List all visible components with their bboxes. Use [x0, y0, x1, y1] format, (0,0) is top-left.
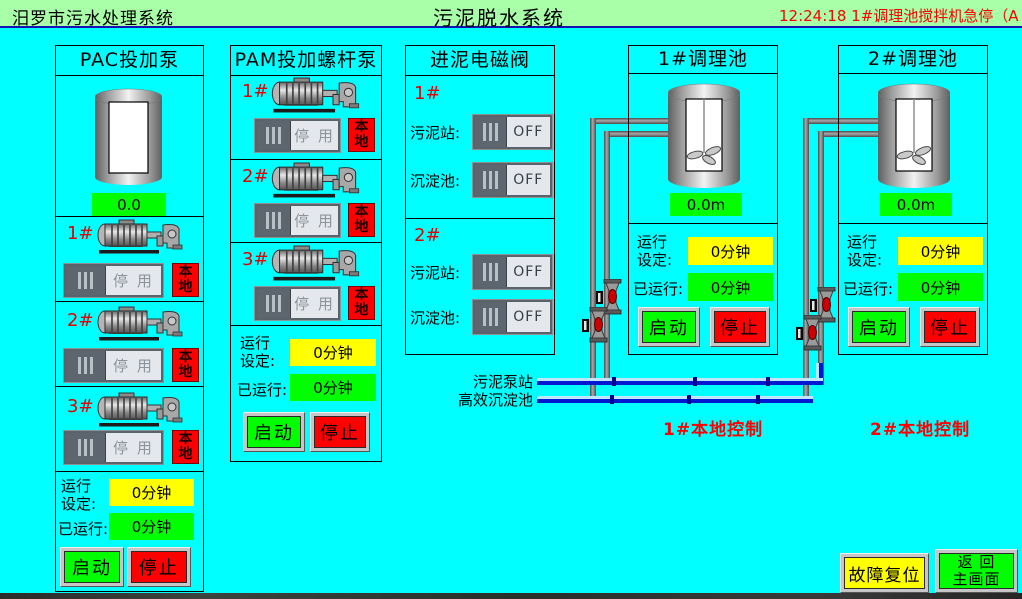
tank2-mixer-tank: [878, 83, 950, 189]
pam-stop-button[interactable]: 停止: [310, 412, 370, 452]
pac-pump-2-label: 2#: [67, 310, 94, 331]
pac-pump-3-switch[interactable]: 停 用: [64, 431, 163, 464]
pipe-joint: [612, 377, 616, 386]
tank2-runset-value[interactable]: 0分钟: [898, 237, 983, 265]
pac-panel-title: PAC投加泵: [56, 46, 203, 76]
system-title: 汨罗市污水处理系统: [12, 4, 174, 29]
bottom-edge-strip: [0, 593, 1022, 599]
pam-panel: PAM投加螺杆泵 1# 停 用 本地 2# 停 用 本地 3# 停 用 本地 运…: [230, 45, 382, 462]
valve-2-sludge-switch[interactable]: OFF: [473, 255, 552, 289]
hmi-screen: 汨罗市污水处理系统 污泥脱水系统 12:24:18 1#调理池搅拌机急停（A P…: [0, 0, 1022, 599]
tank1-stop-button[interactable]: 停止: [710, 307, 770, 347]
valve-1-settling-label: 沉淀池:: [410, 170, 460, 191]
pac-runset-label: 运行设定:: [61, 477, 96, 513]
pam-panel-title: PAM投加螺杆泵: [231, 46, 381, 76]
pam-runset-label: 运行设定:: [240, 334, 275, 370]
valve-icon: [796, 315, 822, 351]
pam-pump-2-local-badge: 本地: [348, 203, 375, 237]
switch-handle-icon: [257, 289, 291, 318]
tank2-control-note: 2#本地控制: [870, 415, 970, 440]
pam-pump-3-local-badge: 本地: [348, 286, 375, 320]
pam-pump-3-label: 3#: [242, 249, 269, 270]
pac-pump-1-local-badge: 本地: [172, 263, 199, 297]
pam-pump-1-switch[interactable]: 停 用: [255, 119, 340, 152]
pump-icon: [93, 392, 185, 428]
valve-group-1-label: 1#: [414, 83, 441, 104]
pipe-joint: [756, 395, 760, 404]
tank1-mixer-tank: [668, 83, 740, 189]
settling-tank-pipe: [537, 396, 813, 403]
valve-1-sludge-switch[interactable]: OFF: [473, 115, 552, 149]
alarm-message: 1#调理池搅拌机急停（A: [851, 7, 1018, 25]
switch-handle-icon: [475, 165, 507, 195]
pam-elapsed-value: 0分钟: [290, 374, 376, 401]
tank1-elapsed-value: 0分钟: [688, 273, 773, 301]
pipe-joint: [610, 395, 614, 404]
pump-icon: [267, 77, 362, 114]
pac-pump-1-switch[interactable]: 停 用: [64, 264, 163, 297]
tank2-panel-title: 2#调理池: [839, 46, 987, 74]
pump-icon: [93, 219, 185, 255]
pac-start-button[interactable]: 启动: [60, 547, 124, 587]
valve-1-settling-switch[interactable]: OFF: [473, 163, 552, 197]
valve-panel-title: 进泥电磁阀: [406, 46, 554, 76]
tank1-runset-label: 运行设定:: [637, 233, 672, 269]
tank1-panel-title: 1#调理池: [629, 46, 777, 74]
pipe-joint: [693, 377, 697, 386]
switch-handle-icon: [475, 302, 507, 332]
pam-elapsed-label: 已运行:: [237, 379, 287, 400]
pac-elapsed-label: 已运行:: [58, 518, 108, 539]
tank2-elapsed-value: 0分钟: [898, 273, 983, 301]
switch-handle-icon: [475, 257, 507, 287]
pac-runset-value[interactable]: 0分钟: [109, 479, 194, 506]
pac-pump-3-local-badge: 本地: [172, 430, 199, 464]
switch-handle-icon: [66, 433, 106, 462]
valve-group-2-label: 2#: [414, 225, 441, 246]
tank1-drop-pipe-left: [590, 118, 596, 403]
switch-handle-icon: [66, 266, 106, 295]
pipe-joint: [766, 377, 770, 386]
pac-pump-1-label: 1#: [67, 223, 94, 244]
valve-2-settling-label: 沉淀池:: [410, 307, 460, 328]
pam-pump-1-local-badge: 本地: [348, 118, 375, 152]
pam-pump-3-switch[interactable]: 停 用: [255, 287, 340, 320]
pac-pump-2-local-badge: 本地: [172, 348, 199, 382]
pam-runset-value[interactable]: 0分钟: [290, 339, 376, 366]
pac-tank: [95, 88, 162, 186]
clock: 12:24:18: [779, 7, 846, 25]
fault-reset-button[interactable]: 故障复位: [840, 553, 929, 593]
header-bar: 汨罗市污水处理系统 污泥脱水系统 12:24:18 1#调理池搅拌机急停（A: [0, 0, 1022, 28]
pump-icon: [93, 306, 185, 342]
settling-tank-label: 高效沉淀池: [440, 389, 533, 410]
tank2-stop-button[interactable]: 停止: [920, 307, 980, 347]
tank1-runset-value[interactable]: 0分钟: [688, 237, 773, 265]
pipe-joint: [687, 395, 691, 404]
valve-1-sludge-label: 污泥站:: [410, 122, 460, 143]
tank1-panel: 1#调理池 0.0m 运行设定: 0分钟 已运行: 0分钟 启动 停止: [628, 45, 778, 355]
valve-icon: [582, 307, 608, 343]
tank2-drop-pipe-left: [803, 118, 809, 403]
sludge-pipe-stub: [816, 363, 823, 379]
pam-pump-2-switch[interactable]: 停 用: [255, 204, 340, 237]
switch-handle-icon: [475, 117, 507, 147]
page-title: 污泥脱水系统: [433, 2, 565, 31]
tank1-drop-pipe-right: [604, 131, 610, 385]
pam-pump-2-label: 2#: [242, 166, 269, 187]
pam-start-button[interactable]: 启动: [243, 412, 305, 452]
switch-handle-icon: [257, 206, 291, 235]
pump-icon: [267, 245, 362, 282]
pac-pump-2-switch[interactable]: 停 用: [64, 349, 163, 382]
pam-pump-1-label: 1#: [242, 81, 269, 102]
tank2-panel: 2#调理池 0.0m 运行设定: 0分钟 已运行: 0分钟 启动 停止: [838, 45, 988, 355]
tank2-elapsed-label: 已运行:: [843, 278, 893, 299]
tank1-control-note: 1#本地控制: [663, 415, 763, 440]
pac-stop-button[interactable]: 停止: [127, 547, 191, 587]
tank2-level-display: 0.0m: [880, 193, 952, 216]
pac-level-display: 0.0: [92, 193, 166, 216]
return-main-button[interactable]: 返 回 主画面: [935, 549, 1018, 593]
tank1-level-display: 0.0m: [670, 193, 742, 216]
tank1-start-button[interactable]: 启动: [638, 307, 700, 347]
pump-icon: [267, 162, 362, 199]
tank2-start-button[interactable]: 启动: [848, 307, 910, 347]
inlet-valve-panel: 进泥电磁阀 1# 污泥站: OFF 沉淀池: OFF 2# 污泥站: OFF 沉…: [405, 45, 555, 355]
pac-elapsed-value: 0分钟: [109, 513, 194, 540]
tank2-runset-label: 运行设定:: [847, 233, 882, 269]
sludge-station-pipe: [537, 378, 823, 385]
switch-handle-icon: [257, 121, 291, 150]
pac-panel: PAC投加泵 0.0 1# 停 用 本地 2# 停 用 本地 3# 停 用: [55, 45, 204, 592]
pac-pump-3-label: 3#: [67, 396, 94, 417]
switch-handle-icon: [66, 351, 106, 380]
alarm-line: 12:24:18 1#调理池搅拌机急停（A: [779, 5, 1022, 26]
valve-2-settling-switch[interactable]: OFF: [473, 300, 552, 334]
tank1-elapsed-label: 已运行:: [633, 278, 683, 299]
valve-2-sludge-label: 污泥站:: [410, 262, 460, 283]
